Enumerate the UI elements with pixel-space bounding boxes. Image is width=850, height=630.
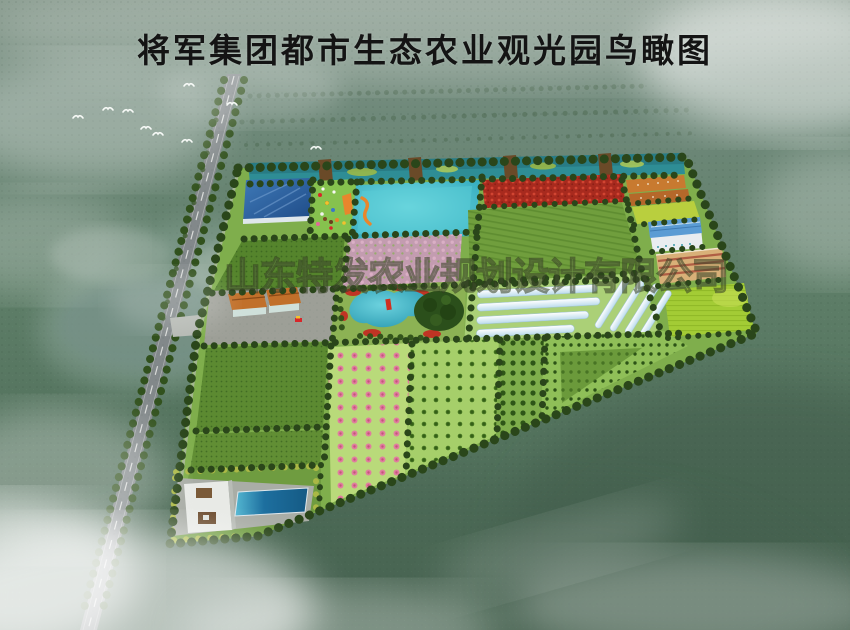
aerial-view-stage: 将军集团都市生态农业观光园鸟瞰图 山东特发农业规划设计有限公司 bbox=[0, 0, 850, 630]
compound-pool bbox=[235, 488, 308, 516]
crop-fields-left bbox=[190, 342, 328, 470]
company-watermark: 山东特发农业规划设计有限公司 bbox=[224, 246, 724, 300]
site-aerial-rendering bbox=[0, 0, 850, 630]
compound-building bbox=[184, 480, 236, 533]
playground bbox=[310, 179, 358, 237]
page-title: 将军集团都市生态农业观光园鸟瞰图 bbox=[137, 24, 713, 72]
